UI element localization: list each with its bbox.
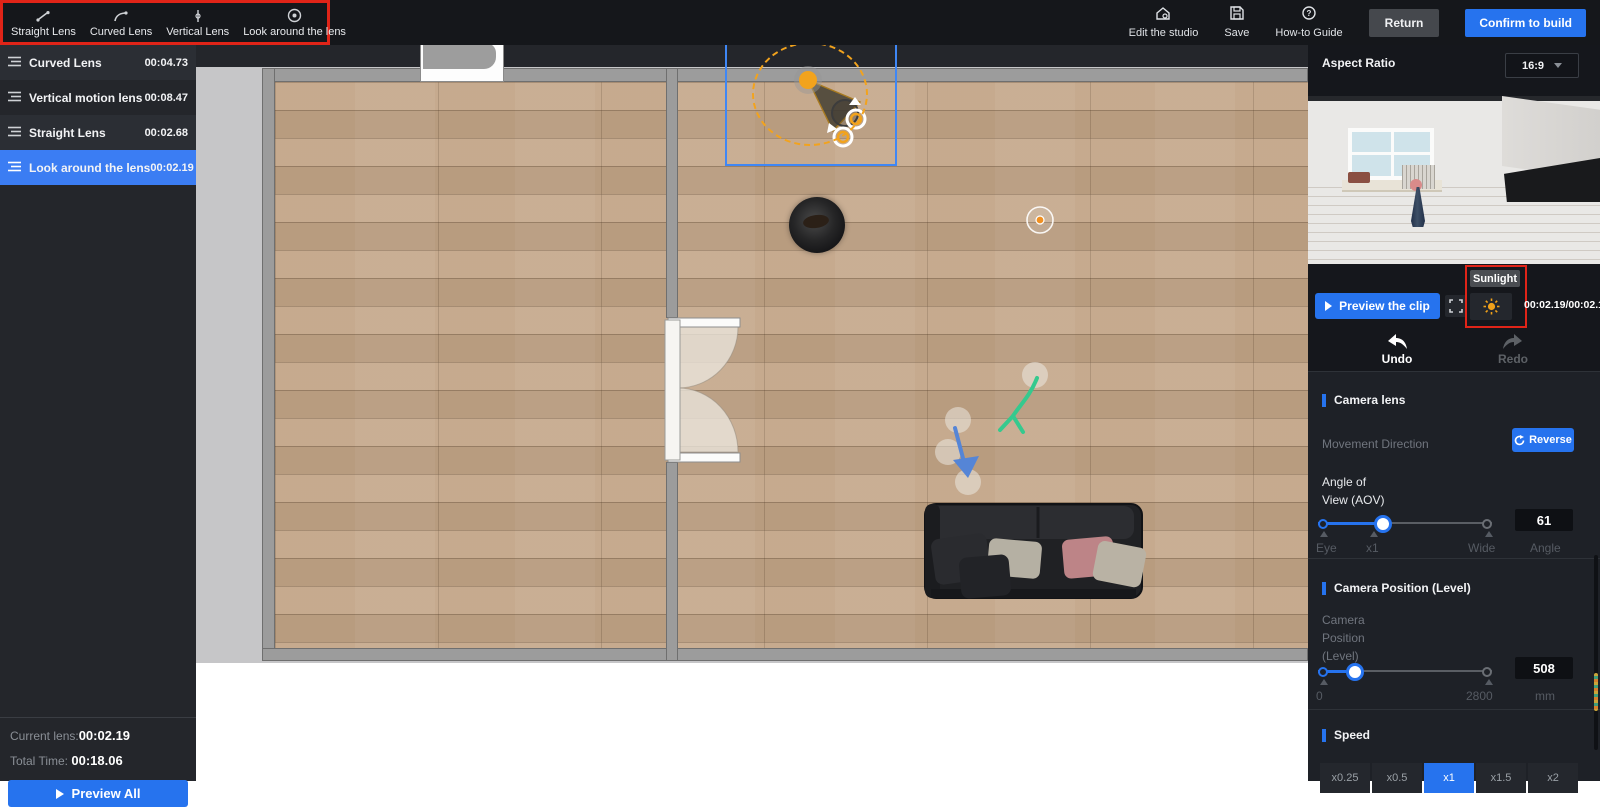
howto-guide-button[interactable]: ? How-to Guide [1275,6,1342,39]
play-icon [56,789,64,799]
aov-mid-label: x1 [1366,541,1379,555]
lens-item-time: 00:04.73 [145,57,188,69]
sofa[interactable] [925,504,1147,599]
sidebar-footer: Current lens:00:02.19 Total Time: 00:18.… [0,717,196,807]
top-actions-group: Edit the studio Save ? How-to Guide Retu… [1129,0,1600,45]
reverse-button[interactable]: Reverse [1512,428,1574,452]
reverse-icon [1514,435,1525,446]
lens-list-item-selected[interactable]: Look around the lens 00:02.19 [0,150,196,185]
lens-item-label: Look around the lens [29,161,150,175]
straight-lens-icon [35,10,51,23]
speed-x2-button[interactable]: x2 [1528,763,1578,793]
plant-top-view[interactable] [789,197,845,253]
panel-scrollbar-thumb[interactable] [1594,673,1598,711]
aov-label-line2: View (AOV) [1322,493,1384,507]
tool-look-around-lens[interactable]: Look around the lens [243,8,346,38]
question-icon: ? [1302,6,1316,25]
aspect-ratio-label: Aspect Ratio [1322,56,1395,70]
clip-time-display: 00:02.19/00:02.19 [1524,299,1600,311]
return-button[interactable]: Return [1369,9,1440,37]
aspect-ratio-dropdown[interactable]: 16:9 [1505,53,1579,78]
movement-direction-label: Movement Direction [1322,437,1429,451]
curved-lens-icon [113,10,129,23]
fullscreen-icon [1449,299,1463,313]
aov-label-line1: Angle of [1322,475,1366,489]
double-door[interactable] [665,318,740,462]
chevron-down-icon [1554,63,1562,68]
aov-min-label: Eye [1316,541,1337,555]
sunlight-highlight-box [1465,265,1527,328]
edit-studio-button[interactable]: Edit the studio [1129,6,1199,39]
home-icon [1155,6,1171,25]
playlist-icon [8,159,21,177]
lens-item-label: Straight Lens [29,126,145,140]
tool-straight-lens[interactable]: Straight Lens [11,10,76,38]
aov-max-label: Wide [1468,541,1495,555]
tool-label: Curved Lens [90,26,152,38]
speed-x05-button[interactable]: x0.5 [1372,763,1422,793]
playlist-icon [8,89,21,107]
save-button[interactable]: Save [1224,6,1249,39]
camera-position-slider-thumb[interactable] [1346,663,1364,681]
aov-value-input[interactable]: 61 [1515,509,1573,531]
camera-position-value-input[interactable]: 508 [1515,657,1573,679]
divider [1308,709,1600,710]
floorplan-canvas[interactable] [196,45,1308,781]
lens-list-item[interactable]: Straight Lens 00:02.68 [0,115,196,150]
tool-label: Straight Lens [11,26,76,38]
lens-item-label: Vertical motion lens [29,91,145,105]
top-toolbar: Straight Lens Curved Lens Vertical Lens … [0,0,1600,45]
save-icon [1230,6,1244,25]
preview-cushion [1348,172,1370,183]
undo-icon [1385,333,1409,350]
render-preview-thumbnail[interactable] [1308,96,1600,264]
lens-tools-group: Straight Lens Curved Lens Vertical Lens … [0,0,330,45]
playlist-icon [8,124,21,142]
lens-list-sidebar: Curved Lens 00:04.73 Vertical motion len… [0,45,196,781]
lens-list-item[interactable]: Vertical motion lens 00:08.47 [0,80,196,115]
camera-lens-section-header: Camera lens [1322,393,1405,407]
properties-panel: Aspect Ratio 16:9 Preview the clip [1308,45,1600,781]
current-lens-readout: Current lens:00:02.19 [10,728,196,743]
tool-label: Vertical Lens [166,26,229,38]
cam-pos-label-line1: Camera [1322,613,1365,627]
tool-label: Look around the lens [243,26,346,38]
svg-text:?: ? [1307,9,1312,18]
section-accent-bar [1322,582,1326,595]
redo-icon [1501,333,1525,350]
divider [1308,371,1600,372]
clip-controls: Preview the clip Sunlight 00:02.19/00:02… [1308,264,1600,371]
lens-item-time: 00:08.47 [145,92,188,104]
tool-curved-lens[interactable]: Curved Lens [90,10,152,38]
section-accent-bar [1322,729,1326,742]
aov-slider[interactable] [1318,515,1492,531]
aov-tick-wide [1485,531,1493,537]
plant-notch [802,213,830,229]
preview-lamp [1410,179,1422,191]
look-around-icon [287,8,302,23]
cam-tick-max [1485,679,1493,685]
tool-vertical-lens[interactable]: Vertical Lens [166,9,229,38]
vertical-lens-icon [193,9,203,23]
lens-list-item[interactable]: Curved Lens 00:04.73 [0,45,196,80]
waypoint-marker[interactable] [1027,207,1053,233]
play-icon [1325,301,1332,311]
lens-item-time: 00:02.19 [150,162,193,174]
camera-position-slider[interactable] [1318,663,1492,679]
divider [1308,558,1600,559]
cam-min-label: 0 [1316,689,1323,703]
speed-x15-button[interactable]: x1.5 [1476,763,1526,793]
lens-item-time: 00:02.68 [145,127,188,139]
cam-pos-label-line2: Position [1322,631,1365,645]
preview-clip-button[interactable]: Preview the clip [1315,293,1440,319]
speed-x1-button[interactable]: x1 [1424,763,1474,793]
redo-button[interactable]: Redo [1473,333,1553,366]
fullscreen-button[interactable] [1445,295,1467,317]
speed-x025-button[interactable]: x0.25 [1320,763,1370,793]
confirm-to-build-button[interactable]: Confirm to build [1465,9,1586,37]
lens-item-label: Curved Lens [29,56,145,70]
cam-unit-label: mm [1535,689,1555,703]
green-path-arrow [1000,378,1037,432]
section-accent-bar [1322,394,1326,407]
playlist-icon [8,54,21,72]
aov-tick-x1 [1370,531,1378,537]
aspect-ratio-row: Aspect Ratio 16:9 [1308,45,1600,96]
aov-tick-eye [1320,531,1328,537]
camera-position-section-header: Camera Position (Level) [1322,581,1471,595]
cam-max-label: 2800 [1466,689,1493,703]
cam-tick-min [1320,679,1328,685]
preview-all-button[interactable]: Preview All [8,780,188,807]
preview-ceiling [1308,96,1600,101]
selection-box[interactable] [725,45,897,166]
undo-button[interactable]: Undo [1357,333,1437,366]
panel-scrollbar-track[interactable] [1594,555,1598,750]
speed-section-header: Speed [1322,728,1370,742]
total-time-readout: Total Time: 00:18.06 [10,753,196,768]
camera-path [935,362,1048,495]
aov-unit-label: Angle [1530,541,1561,555]
cam-pos-label-line3: (Level) [1322,649,1359,663]
